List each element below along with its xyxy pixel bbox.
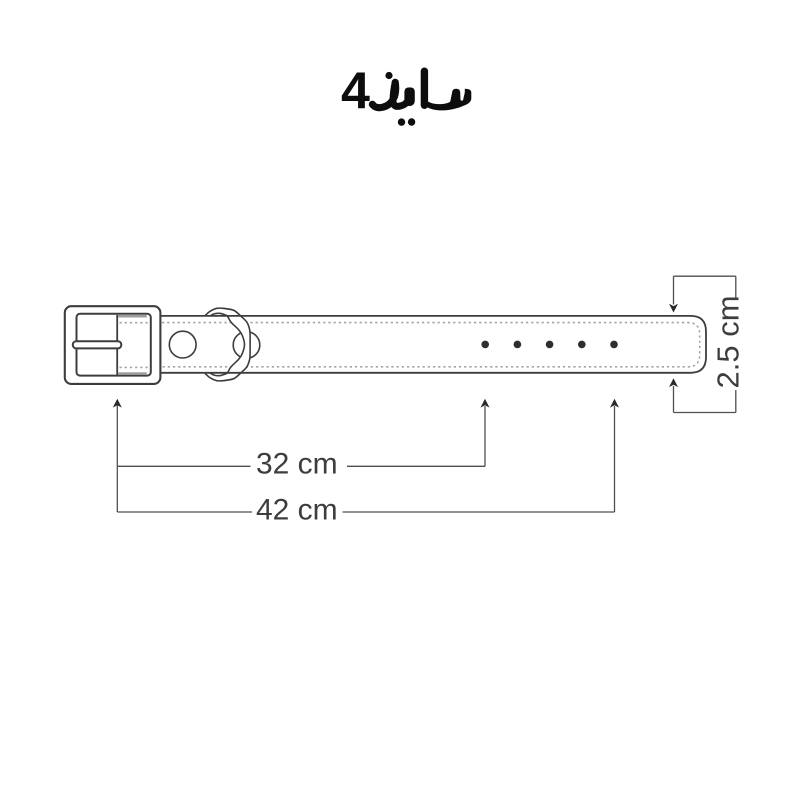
svg-text:4: 4 xyxy=(341,63,370,121)
svg-text:32 cm: 32 cm xyxy=(256,447,338,480)
svg-text:42 cm: 42 cm xyxy=(256,494,338,527)
svg-text:2.5 cm: 2.5 cm xyxy=(711,295,746,388)
